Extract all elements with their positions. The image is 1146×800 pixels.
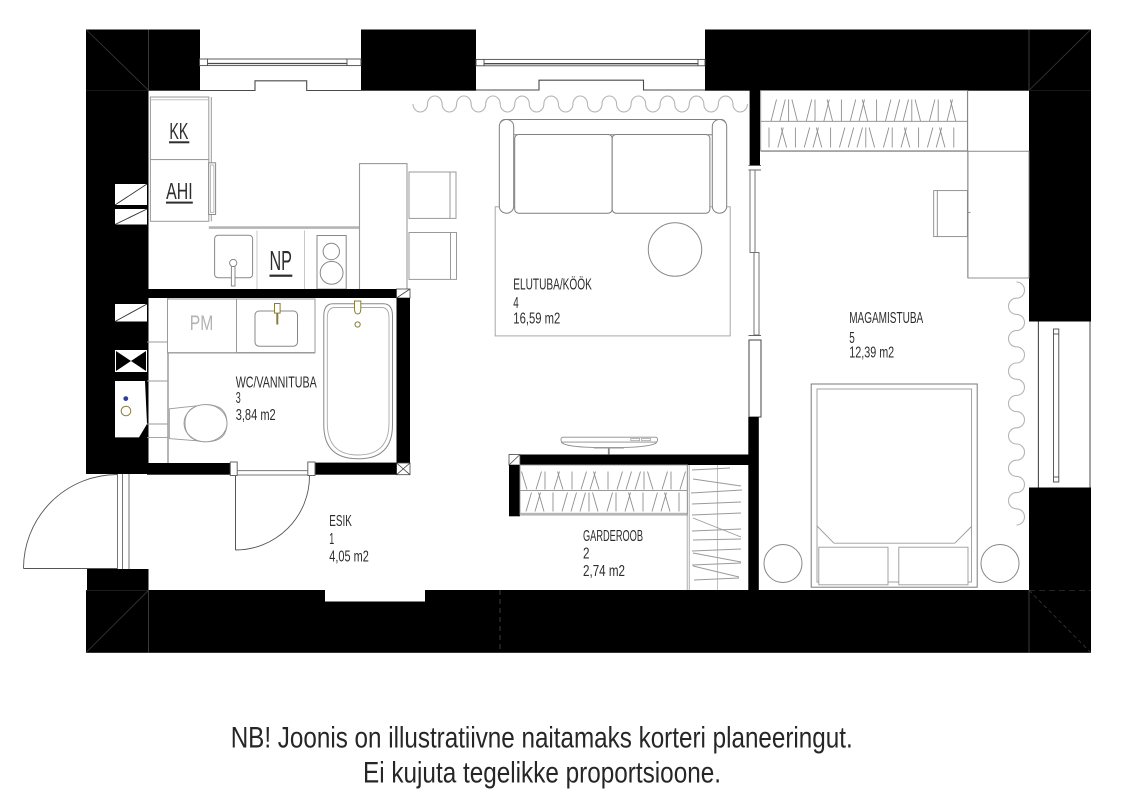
svg-text:AHI: AHI: [166, 178, 193, 204]
svg-text:ESIK: ESIK: [329, 513, 352, 530]
svg-text:1: 1: [329, 531, 334, 548]
svg-text:WC/VANNITUBA: WC/VANNITUBA: [236, 375, 317, 392]
svg-text:2,74 m2: 2,74 m2: [583, 563, 625, 580]
svg-text:16,59 m2: 16,59 m2: [513, 311, 560, 328]
svg-text:2: 2: [583, 546, 590, 563]
svg-text:KK: KK: [169, 118, 188, 144]
svg-text:3: 3: [236, 390, 241, 407]
svg-text:NP: NP: [269, 245, 292, 276]
svg-text:3,84 m2: 3,84 m2: [236, 407, 276, 424]
svg-text:PM: PM: [190, 312, 214, 335]
svg-text:GARDEROOB: GARDEROOB: [583, 528, 643, 545]
svg-text:12,39 m2: 12,39 m2: [849, 344, 894, 361]
svg-text:4,05 m2: 4,05 m2: [329, 549, 369, 566]
svg-text:NB! Joonis on illustratiivne n: NB! Joonis on illustratiivne naitamaks k…: [231, 722, 853, 755]
svg-text:ELUTUBA/KÖÖK: ELUTUBA/KÖÖK: [513, 276, 592, 294]
svg-text:Ei kujuta tegelikke proportsio: Ei kujuta tegelikke proportsioone.: [363, 757, 721, 790]
svg-text:MAGAMISTUBA: MAGAMISTUBA: [849, 310, 923, 327]
